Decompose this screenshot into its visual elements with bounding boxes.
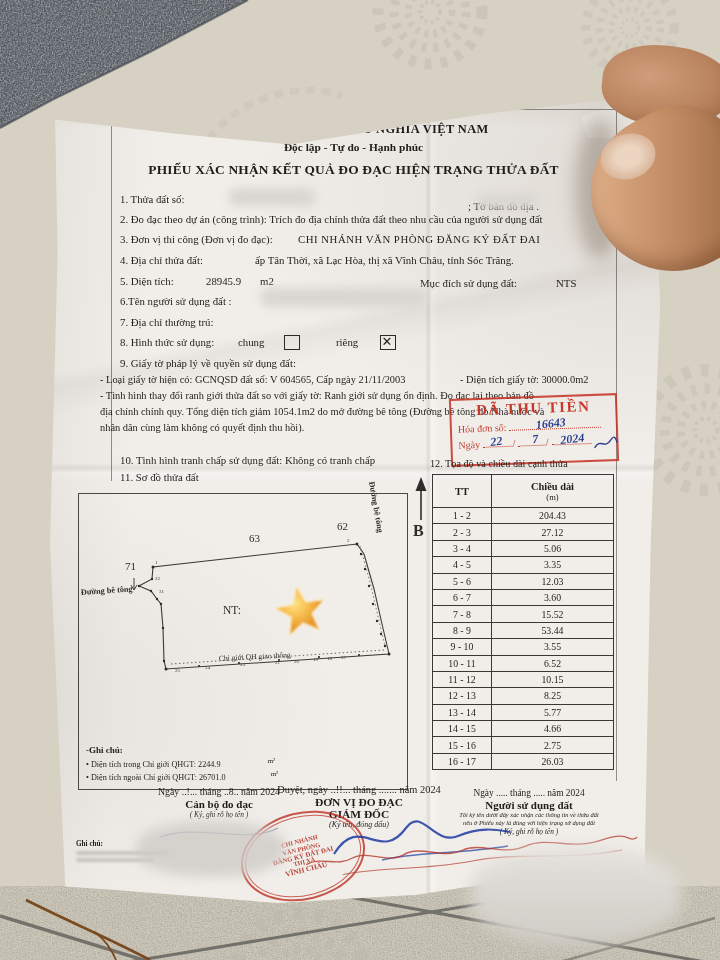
edge-id-cell: 3 - 4: [433, 540, 492, 556]
svg-text:20: 20: [294, 659, 300, 664]
checkbox-chung: [284, 335, 300, 350]
svg-text:21: 21: [275, 660, 281, 665]
edge-id-cell: 1 - 2: [433, 508, 492, 524]
svg-text:18: 18: [327, 656, 333, 661]
table-row: 12 - 138.25: [433, 688, 614, 704]
edge-id-cell: 14 - 15: [433, 721, 492, 737]
table-header-row: TT Chiều dài (m): [433, 475, 614, 508]
field-parcel-address-value: ấp Tân Thời, xã Lạc Hòa, thị xã Vĩnh Châ…: [255, 254, 514, 266]
note-inside-qhgt: • Diện tích trong Chỉ giới QHGT: 2244.9 …: [86, 757, 278, 770]
table-row: 6 - 73.60: [433, 589, 614, 605]
sketch-notes: -Ghi chú: • Diện tích trong Chỉ giới QHG…: [86, 745, 278, 783]
table-row: 3 - 45.06: [433, 540, 614, 556]
edge-id-cell: 15 - 16: [433, 737, 492, 753]
col-header-length: Chiều dài (m): [492, 475, 614, 508]
table-row: 8 - 953.44: [433, 622, 614, 638]
field-user-name-label: 6.Tên người sử dụng đất :: [120, 295, 232, 307]
road-right-label: Đường bê tông: [367, 481, 385, 534]
field-area-value: 28945.9: [206, 275, 241, 287]
field-land-use-value: NTS: [556, 277, 576, 289]
parcel-sketch-box: 63 62 71 1 2 22 31 25 24 23 21 20 19 18 …: [78, 493, 408, 790]
table-row: 7 - 815.52: [433, 606, 614, 622]
edge-id-cell: 11 - 12: [433, 671, 492, 687]
redaction-patch: [228, 188, 316, 206]
measurement-table: TT Chiều dài (m) 1 - 2204.432 - 327.123 …: [432, 474, 614, 770]
edge-id-cell: 13 - 14: [433, 704, 492, 720]
svg-text:19: 19: [313, 657, 319, 662]
checkbox-rieng: [380, 335, 396, 350]
edge-length-cell: 26.03: [492, 753, 614, 769]
right-road-dotted: [360, 546, 385, 646]
svg-text:24: 24: [205, 665, 211, 670]
north-label: B: [413, 522, 424, 538]
edge-id-cell: 7 - 8: [433, 606, 492, 622]
svg-text:22: 22: [155, 576, 161, 581]
table-row: 15 - 162.75: [433, 737, 614, 753]
road-left-label: Đường bê tông: [81, 584, 134, 597]
edge-length-cell: 27.12: [492, 524, 614, 540]
date-year-handwritten: 2024: [560, 430, 585, 447]
edge-id-cell: 9 - 10: [433, 639, 492, 655]
edge-length-cell: 3.55: [492, 639, 614, 655]
field-area-unit: m2: [260, 275, 274, 287]
svg-text:2: 2: [347, 538, 350, 543]
svg-text:25: 25: [175, 668, 181, 673]
star-watermark-icon: [275, 586, 324, 635]
invoice-label: Hóa đơn số:: [458, 422, 507, 435]
adjacent-parcel-62: 62: [337, 520, 348, 532]
edge-length-cell: 6.52: [492, 655, 614, 671]
legal-doc-type: - Loại giấy tờ hiện có: GCNQSD đất số: V…: [100, 374, 405, 386]
field-use-form-label: 8. Hình thức sử dụng:: [120, 336, 214, 348]
edge-length-cell: 5.77: [492, 704, 614, 720]
parcel-center-label: NT:: [223, 604, 241, 616]
blurred-paper-corner: [470, 846, 682, 944]
edge-length-cell: 10.15: [492, 671, 614, 687]
document-paper: CỘNG HÒA XÃ HỘI CHỦ NGHĨA VIỆT NAM Độc l…: [36, 88, 671, 918]
edge-id-cell: 4 - 5: [433, 557, 492, 573]
table-row: 1 - 2204.43: [433, 508, 614, 524]
svg-text:37: 37: [341, 655, 347, 660]
edge-length-cell: 204.43: [492, 508, 614, 524]
edge-id-cell: 5 - 6: [433, 573, 492, 589]
note-outside-qhgt: • Diện tích ngoài Chỉ giới QHGT: 26701.0…: [86, 770, 278, 783]
edge-id-cell: 10 - 11: [433, 655, 492, 671]
paid-stamp-date-row: Ngày / / 22 7 2024: [458, 433, 610, 451]
field-contractor-value: CHI NHÁNH VĂN PHÒNG ĐĂNG KÝ ĐẤT ĐAI: [298, 233, 540, 245]
field-contractor-label: 3. Đơn vị thi công (Đơn vị đo đạc):: [120, 233, 273, 245]
field-land-use-label: Mục đích sử dụng đất:: [420, 277, 517, 289]
edge-id-cell: 16 - 17: [433, 753, 492, 769]
table-row: 16 - 1726.03: [433, 753, 614, 769]
redaction-patch: [476, 194, 538, 209]
svg-text:1: 1: [155, 560, 158, 565]
col-header-tt: TT: [433, 475, 492, 508]
table-row: 13 - 145.77: [433, 704, 614, 720]
notes-title: -Ghi chú:: [86, 745, 278, 757]
edge-id-cell: 6 - 7: [433, 589, 492, 605]
edge-length-cell: 3.60: [492, 589, 614, 605]
edge-length-cell: 53.44: [492, 622, 614, 638]
paid-stamp-title: ĐÃ THU TIỀN: [457, 397, 610, 419]
table-row: 14 - 154.66: [433, 721, 614, 737]
col-header-unit: (m): [492, 492, 613, 502]
field-project: 2. Đo đạc theo dự án (công trình): Trích…: [120, 213, 543, 225]
adjacent-parcel-71: 71: [125, 560, 136, 572]
field-parcel-address-label: 4. Địa chỉ thửa đất:: [120, 254, 203, 266]
table-row: 9 - 103.55: [433, 639, 614, 655]
parcel-boundary: [139, 544, 389, 669]
checkbox-chung-label: chung: [238, 336, 264, 348]
date-month-handwritten: 7: [532, 432, 540, 448]
paid-stamp: ĐÃ THU TIỀN Hóa đơn số: 16643 Ngày / / 2…: [449, 393, 619, 467]
edge-length-cell: 2.75: [492, 737, 614, 753]
redaction-patch: [260, 288, 428, 307]
checkbox-rieng-label: riêng: [336, 336, 358, 348]
field-dispute: 10. Tình hình tranh chấp sử dụng đất: Kh…: [120, 454, 375, 466]
measurement-table-body: 1 - 2204.432 - 327.123 - 45.064 - 53.355…: [433, 508, 614, 770]
edge-length-cell: 3.35: [492, 557, 614, 573]
north-arrow-icon: B: [408, 476, 434, 538]
legal-doc-area: - Diện tích giấy tờ: 30000.0m2: [460, 374, 588, 386]
table-row: 5 - 612.03: [433, 573, 614, 589]
stamp-signature: [592, 435, 619, 452]
edge-length-cell: 15.52: [492, 606, 614, 622]
table-row: 2 - 327.12: [433, 524, 614, 540]
land-user-date-line: Ngày ..... tháng ..... năm 2024: [434, 788, 624, 798]
adjacent-parcel-63: 63: [249, 532, 261, 544]
field-legal-docs-label: 9. Giấy tờ pháp lý về quyền sử dụng đất:: [120, 357, 296, 369]
edge-length-cell: 4.66: [492, 721, 614, 737]
table-row: 11 - 1210.15: [433, 671, 614, 687]
svg-text:23: 23: [240, 662, 246, 667]
blurred-region: [136, 821, 286, 877]
edge-id-cell: 2 - 3: [433, 524, 492, 540]
edge-length-cell: 12.03: [492, 573, 614, 589]
photo-scene: CỘNG HÒA XÃ HỘI CHỦ NGHĨA VIỆT NAM Độc l…: [0, 0, 720, 960]
invoice-number-handwritten: 16643: [535, 415, 566, 433]
section-table-title: 12. Tọa độ và chiều dài cạnh thửa: [430, 458, 568, 470]
section-sketch-title: 11. Sơ đồ thửa đất: [120, 471, 199, 483]
field-residence-label: 7. Địa chỉ thường trú:: [120, 316, 213, 328]
date-day-handwritten: 22: [490, 434, 504, 450]
edge-id-cell: 12 - 13: [433, 688, 492, 704]
boundary-change-line3: nhân dân cùng làm không có quyết định th…: [100, 422, 304, 434]
svg-text:31: 31: [159, 589, 165, 594]
table-row: 10 - 116.52: [433, 655, 614, 671]
edge-length-cell: 5.06: [492, 540, 614, 556]
table-row: 4 - 53.35: [433, 557, 614, 573]
parcel-sketch: 63 62 71 1 2 22 31 25 24 23 21 20 19 18 …: [79, 494, 409, 744]
national-motto: Độc lập - Tự do - Hạnh phúc: [36, 141, 671, 154]
edge-length-cell: 8.25: [492, 688, 614, 704]
edge-id-cell: 8 - 9: [433, 622, 492, 638]
field-parcel-number-label: 1. Thửa đất số:: [120, 193, 184, 205]
field-area-label: 5. Diện tích:: [120, 275, 174, 287]
date-label: Ngày: [458, 439, 480, 451]
